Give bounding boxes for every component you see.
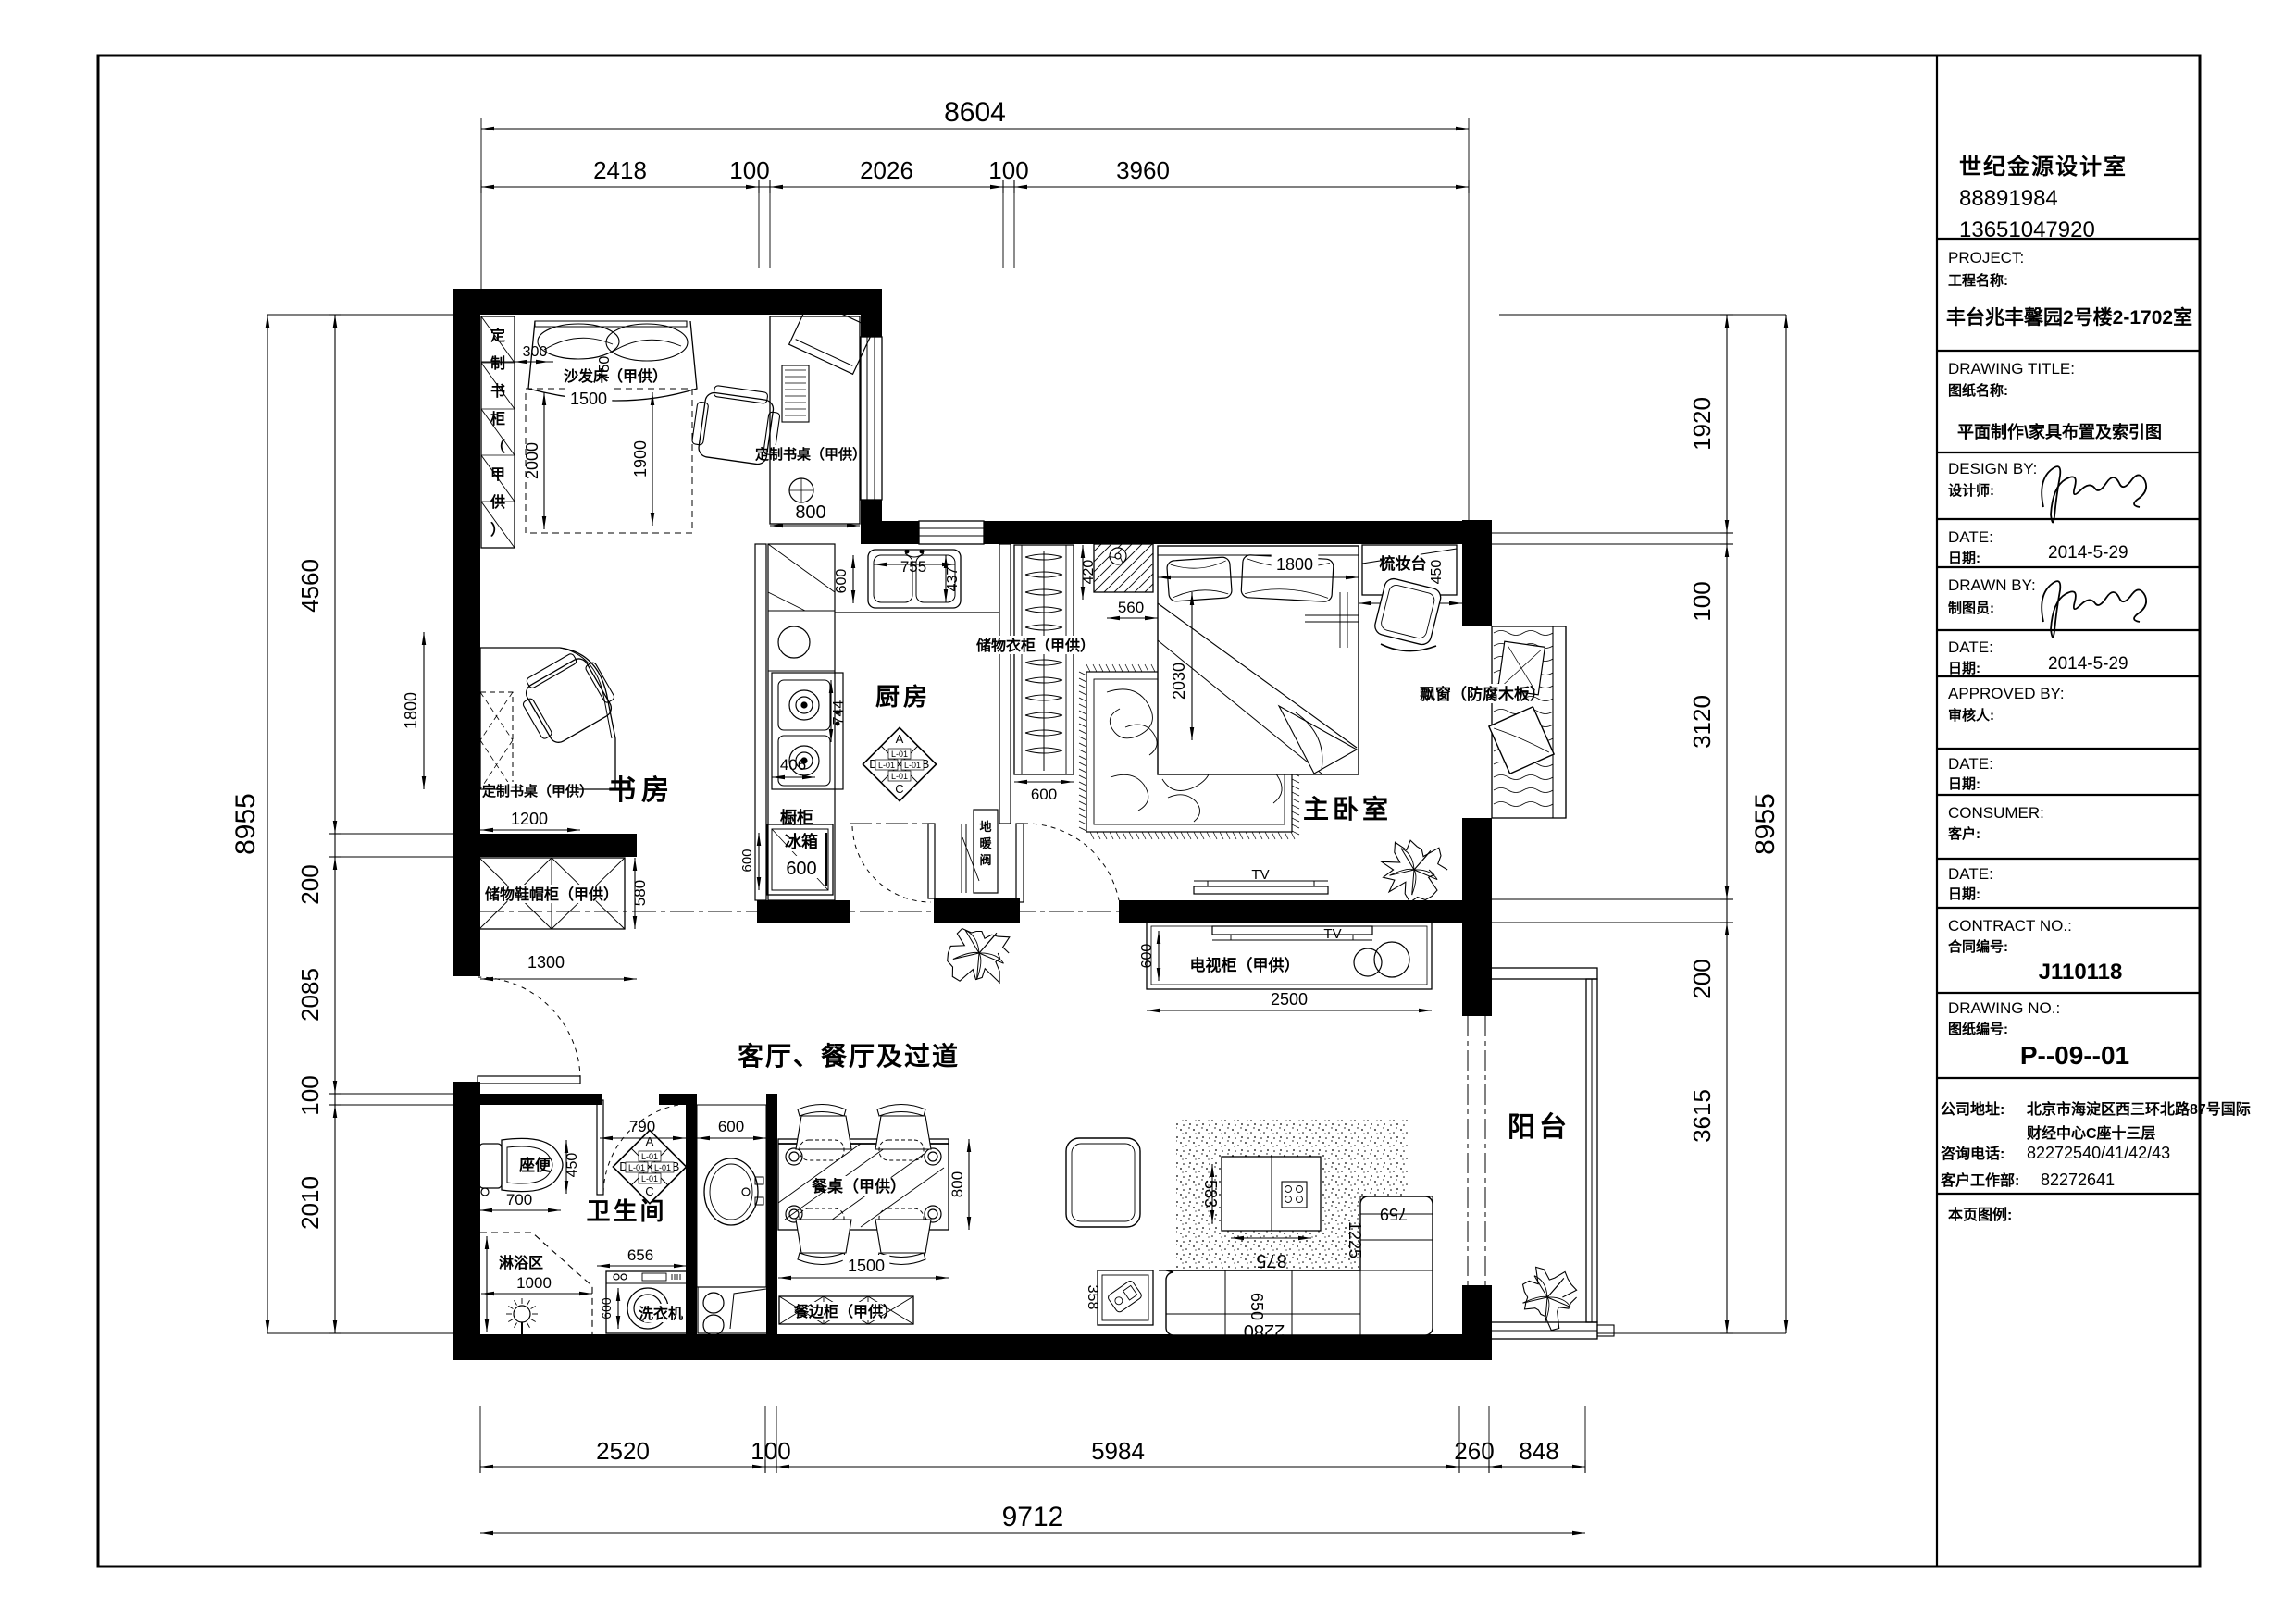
svg-text:财经中心C座十三层: 财经中心C座十三层 xyxy=(2026,1124,2156,1142)
svg-text:DATE:: DATE: xyxy=(1948,755,1993,773)
svg-text:600: 600 xyxy=(599,1297,614,1319)
svg-text:358: 358 xyxy=(1085,1285,1100,1310)
svg-text:梳妆台: 梳妆台 xyxy=(1380,554,1427,573)
svg-text:制图员:: 制图员: xyxy=(1948,600,1994,616)
svg-text:700: 700 xyxy=(506,1191,532,1208)
svg-text:13651047920: 13651047920 xyxy=(1959,217,2095,242)
svg-text:储物衣柜（甲供）: 储物衣柜（甲供） xyxy=(975,637,1095,654)
svg-text:日期:: 日期: xyxy=(1948,660,1980,676)
svg-text:2085: 2085 xyxy=(296,968,324,1022)
svg-text:C: C xyxy=(645,1184,653,1198)
svg-text:2280: 2280 xyxy=(1244,1320,1285,1341)
svg-text:设计师:: 设计师: xyxy=(1948,482,1994,499)
svg-text:书房: 书房 xyxy=(608,775,675,806)
svg-text:L-01: L-01 xyxy=(628,1163,645,1172)
svg-text:定制书桌（甲供）: 定制书桌（甲供） xyxy=(755,446,866,463)
svg-text:580: 580 xyxy=(631,880,649,906)
svg-text:2418: 2418 xyxy=(593,156,647,184)
svg-text:审核人:: 审核人: xyxy=(1948,707,1994,724)
svg-text:淋浴区: 淋浴区 xyxy=(499,1254,543,1271)
svg-text:DRAWN BY:: DRAWN BY: xyxy=(1948,576,2036,594)
svg-text:9712: 9712 xyxy=(1002,1502,1064,1532)
svg-text:100: 100 xyxy=(988,156,1028,184)
svg-text:1225: 1225 xyxy=(1346,1221,1364,1258)
svg-text:3615: 3615 xyxy=(1688,1089,1716,1143)
svg-text:82272641: 82272641 xyxy=(2041,1171,2115,1189)
svg-text:PROJECT:: PROJECT: xyxy=(1948,249,2024,266)
svg-text:制: 制 xyxy=(490,355,505,372)
svg-text:2010: 2010 xyxy=(296,1176,324,1230)
svg-text:2014-5-29: 2014-5-29 xyxy=(2048,543,2128,563)
svg-text:DESIGN BY:: DESIGN BY: xyxy=(1948,460,2037,477)
svg-text:368: 368 xyxy=(1113,1334,1138,1350)
svg-text:100: 100 xyxy=(751,1437,790,1465)
svg-text:260: 260 xyxy=(1454,1437,1494,1465)
svg-text:8955: 8955 xyxy=(230,793,261,855)
svg-text:TV: TV xyxy=(1251,867,1269,883)
svg-text:1500: 1500 xyxy=(848,1257,885,1275)
svg-text:沙发床（甲供）: 沙发床（甲供） xyxy=(564,367,667,385)
svg-text:L-01: L-01 xyxy=(654,1163,671,1172)
svg-text:）: ） xyxy=(490,522,505,539)
svg-text:L-01: L-01 xyxy=(641,1174,658,1183)
svg-text:厨房: 厨房 xyxy=(875,683,931,711)
svg-text:300: 300 xyxy=(523,344,548,360)
svg-text:丰台兆丰馨园2号楼2-1702室: 丰台兆丰馨园2号楼2-1702室 xyxy=(1946,306,2192,328)
svg-text:本页图例:: 本页图例: xyxy=(1948,1206,2012,1223)
svg-text:P--09--01: P--09--01 xyxy=(2020,1041,2129,1070)
svg-text:储物鞋帽柜（甲供）: 储物鞋帽柜（甲供） xyxy=(484,886,618,903)
svg-text:电视柜（甲供）: 电视柜（甲供） xyxy=(1190,956,1300,974)
svg-text:J110118: J110118 xyxy=(2039,960,2123,985)
svg-text:450: 450 xyxy=(565,1153,580,1178)
svg-text:437: 437 xyxy=(945,567,961,592)
svg-text:600: 600 xyxy=(739,849,755,872)
svg-text:200: 200 xyxy=(1688,959,1716,998)
svg-text:阳台: 阳台 xyxy=(1508,1111,1570,1143)
svg-text:L-01: L-01 xyxy=(891,772,908,781)
svg-text:450: 450 xyxy=(1429,560,1445,585)
svg-text:CONSUMER:: CONSUMER: xyxy=(1948,804,2044,822)
svg-text:560: 560 xyxy=(1118,599,1144,616)
svg-text:L-01: L-01 xyxy=(904,761,921,770)
svg-text:甲: 甲 xyxy=(490,466,505,483)
svg-text:柜: 柜 xyxy=(490,410,505,427)
svg-text:656: 656 xyxy=(627,1246,653,1264)
svg-text:DRAWING NO.:: DRAWING NO.: xyxy=(1948,999,2060,1017)
svg-text:DATE:: DATE: xyxy=(1948,865,1993,883)
svg-text:卫生间: 卫生间 xyxy=(586,1197,666,1225)
svg-text:世纪金源设计室: 世纪金源设计室 xyxy=(1959,154,2128,180)
svg-text:8604: 8604 xyxy=(944,97,1006,128)
svg-text:咨询电话:: 咨询电话: xyxy=(1941,1145,2004,1162)
svg-text:1800: 1800 xyxy=(1276,555,1313,574)
svg-text:650: 650 xyxy=(1247,1293,1266,1320)
svg-text:公司地址:: 公司地址: xyxy=(1941,1100,2004,1118)
svg-text:100: 100 xyxy=(729,156,769,184)
svg-text:600: 600 xyxy=(786,859,816,879)
svg-text:阀: 阀 xyxy=(979,853,991,867)
svg-text:755: 755 xyxy=(900,558,926,576)
svg-text:1300: 1300 xyxy=(527,953,565,972)
svg-text:地: 地 xyxy=(979,820,991,834)
svg-text:100: 100 xyxy=(296,1075,324,1115)
svg-text:2000: 2000 xyxy=(523,442,541,479)
svg-text:900: 900 xyxy=(467,1291,483,1316)
svg-text:L-01: L-01 xyxy=(878,761,895,770)
svg-text:书: 书 xyxy=(490,382,505,400)
svg-text:餐桌（甲供）: 餐桌（甲供） xyxy=(812,1177,906,1196)
svg-text:日期:: 日期: xyxy=(1948,775,1980,792)
svg-text:790: 790 xyxy=(629,1118,655,1135)
svg-text:2026: 2026 xyxy=(860,156,913,184)
svg-text:DATE:: DATE: xyxy=(1948,528,1993,546)
svg-text:冰箱: 冰箱 xyxy=(785,832,818,851)
svg-text:暖: 暖 xyxy=(979,836,992,850)
svg-text:CONTRACT NO.:: CONTRACT NO.: xyxy=(1948,917,2072,935)
svg-text:定: 定 xyxy=(490,327,505,344)
svg-text:1920: 1920 xyxy=(1688,397,1716,451)
svg-text:A: A xyxy=(646,1134,654,1148)
svg-text:2014-5-29: 2014-5-29 xyxy=(2048,654,2128,674)
svg-text:合同编号:: 合同编号: xyxy=(1947,938,2008,955)
svg-text:2030: 2030 xyxy=(1170,663,1188,700)
svg-text:TV: TV xyxy=(1323,926,1341,942)
svg-text:1500: 1500 xyxy=(570,390,607,408)
svg-text:600: 600 xyxy=(1031,786,1057,803)
svg-text:日期:: 日期: xyxy=(1948,886,1980,902)
svg-text:759: 759 xyxy=(1380,1205,1408,1223)
svg-text:82272540/41/42/43: 82272540/41/42/43 xyxy=(2027,1144,2170,1162)
svg-text:DRAWING TITLE:: DRAWING TITLE: xyxy=(1948,360,2075,378)
svg-text:800: 800 xyxy=(949,1171,966,1197)
svg-text:88891984: 88891984 xyxy=(1959,186,2058,211)
svg-text:定制书桌（甲供）: 定制书桌（甲供） xyxy=(482,783,593,799)
svg-text:100: 100 xyxy=(1688,581,1716,621)
svg-text:800: 800 xyxy=(795,502,825,523)
svg-text:4560: 4560 xyxy=(296,559,324,613)
svg-text:供: 供 xyxy=(490,493,505,511)
svg-text:座便: 座便 xyxy=(519,1156,552,1174)
svg-text:406: 406 xyxy=(780,756,806,774)
svg-text:客户工作部:: 客户工作部: xyxy=(1941,1171,2019,1189)
svg-text:1800: 1800 xyxy=(402,692,420,729)
svg-text:C: C xyxy=(895,782,903,796)
svg-text:（: （ xyxy=(490,439,505,455)
svg-text:客户:: 客户: xyxy=(1947,825,1980,842)
svg-text:1000: 1000 xyxy=(516,1274,552,1292)
svg-text:600: 600 xyxy=(1139,944,1155,969)
svg-text:2520: 2520 xyxy=(596,1437,650,1465)
svg-text:A: A xyxy=(896,732,904,746)
svg-text:3120: 3120 xyxy=(1688,695,1716,749)
svg-text:日期:: 日期: xyxy=(1948,550,1980,566)
svg-text:L-01: L-01 xyxy=(641,1152,658,1161)
svg-text:DATE:: DATE: xyxy=(1948,638,1993,656)
svg-text:主卧室: 主卧室 xyxy=(1303,794,1392,824)
svg-text:600: 600 xyxy=(834,569,850,594)
svg-text:平面制作\家具布置及索引图: 平面制作\家具布置及索引图 xyxy=(1957,422,2162,441)
svg-text:3960: 3960 xyxy=(1116,156,1170,184)
svg-text:744: 744 xyxy=(831,700,847,725)
svg-text:1900: 1900 xyxy=(631,440,650,477)
svg-text:583: 583 xyxy=(1201,1180,1220,1208)
svg-text:餐边柜（甲供）: 餐边柜（甲供） xyxy=(793,1303,898,1320)
svg-text:848: 848 xyxy=(1519,1437,1558,1465)
svg-text:875: 875 xyxy=(1256,1250,1286,1270)
svg-text:200: 200 xyxy=(296,864,324,904)
svg-text:图纸编号:: 图纸编号: xyxy=(1948,1021,2008,1037)
svg-text:L-01: L-01 xyxy=(891,750,908,759)
svg-text:2500: 2500 xyxy=(1271,990,1308,1009)
svg-text:北京市海淀区西三环北路87号国际: 北京市海淀区西三环北路87号国际 xyxy=(2027,1100,2251,1118)
svg-text:飘窗（防腐木板）: 飘窗（防腐木板） xyxy=(1420,685,1545,703)
svg-text:750: 750 xyxy=(597,356,613,381)
svg-text:5984: 5984 xyxy=(1091,1437,1145,1465)
svg-text:8955: 8955 xyxy=(1750,793,1781,855)
svg-text:工程名称:: 工程名称: xyxy=(1948,272,2008,289)
svg-text:1200: 1200 xyxy=(511,810,548,828)
svg-text:洗衣机: 洗衣机 xyxy=(639,1305,683,1322)
svg-text:600: 600 xyxy=(718,1118,744,1135)
svg-text:图纸名称:: 图纸名称: xyxy=(1948,382,2008,399)
svg-text:客厅、餐厅及过道: 客厅、餐厅及过道 xyxy=(738,1041,960,1071)
svg-text:APPROVED BY:: APPROVED BY: xyxy=(1948,685,2065,702)
